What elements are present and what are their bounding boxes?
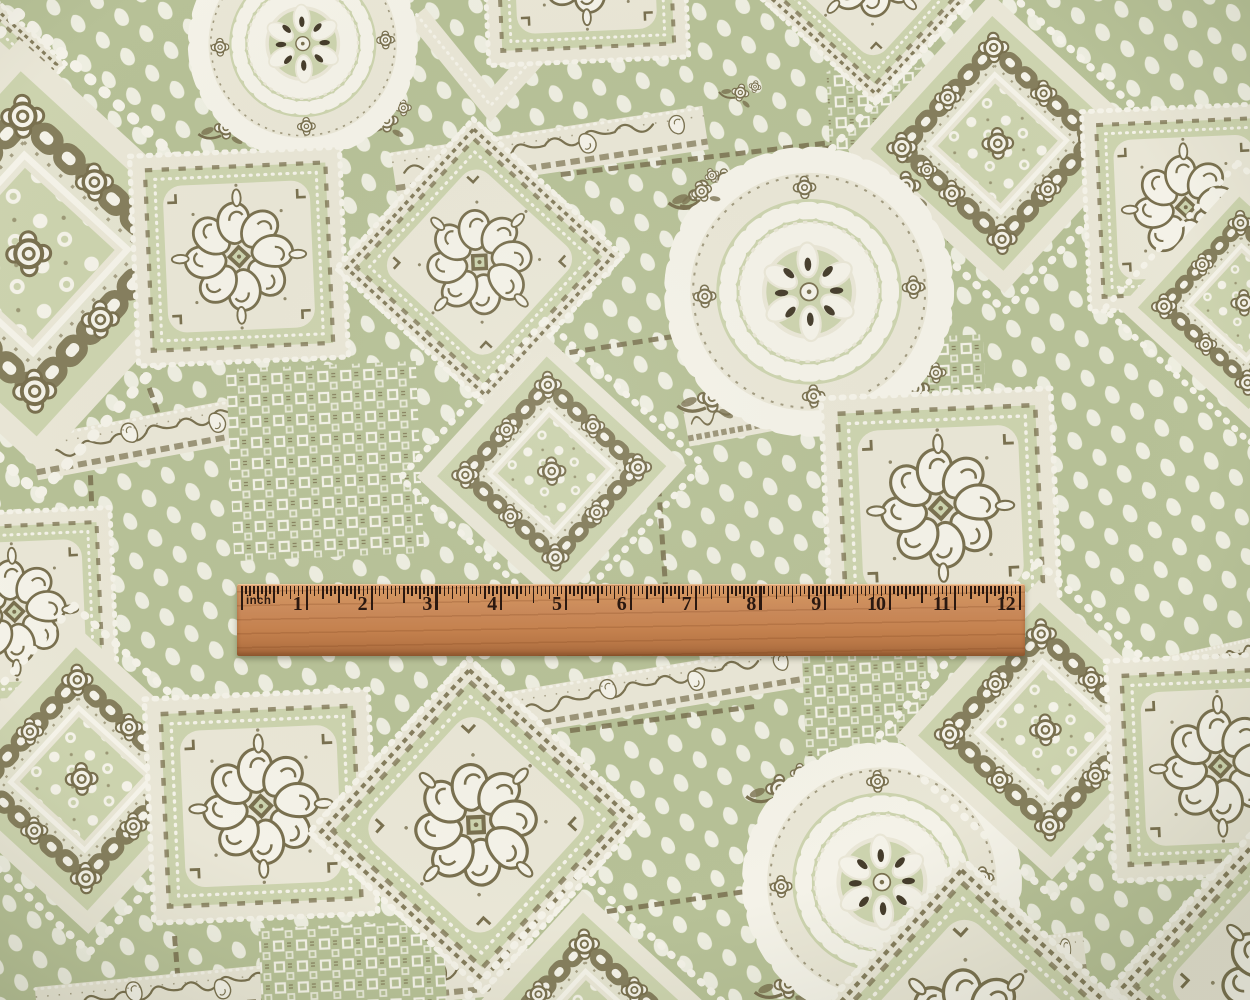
ruler-tick [893, 586, 895, 594]
ruler: inch 123456789101112 [237, 584, 1025, 656]
ruler-tick [338, 586, 340, 603]
ruler-tick [322, 586, 324, 599]
ruler-tick [982, 586, 984, 594]
ruler-tick [930, 586, 932, 596]
ruler-tick [399, 586, 401, 594]
ruler-tick [577, 586, 579, 594]
ruler-tick [520, 586, 522, 594]
ruler-tick [597, 586, 599, 603]
ruler-tick [581, 586, 583, 599]
ruler-tick [593, 586, 595, 594]
ruler-tick [1015, 586, 1017, 594]
ruler-number-11: 11 [933, 593, 950, 616]
ruler-tick [569, 586, 571, 594]
ruler-tick [403, 586, 405, 603]
ruler-number-1: 1 [293, 593, 302, 616]
ruler-tick [723, 586, 725, 594]
ruler-tick [480, 586, 482, 594]
ruler-number-12: 12 [997, 593, 1015, 616]
ruler-tick [253, 586, 255, 594]
ruler-tick [241, 586, 243, 610]
ruler-tick [525, 586, 527, 596]
ruler-tick [257, 586, 259, 599]
ruler-number-5: 5 [552, 593, 561, 616]
ruler-tick [634, 586, 636, 594]
ruler-tick [512, 586, 514, 594]
ruler-tick [529, 586, 531, 594]
ruler-tick [371, 586, 373, 610]
ruler-tick [460, 586, 462, 596]
ruler-tick [759, 586, 761, 610]
ruler-tick [909, 586, 911, 594]
ruler-tick [715, 586, 717, 594]
ruler-tick [840, 586, 842, 599]
ruler-tick [610, 586, 612, 594]
ruler-tick [468, 586, 470, 603]
ruler-tick [662, 586, 664, 603]
ruler-tick [954, 586, 956, 610]
ruler-tick [913, 586, 915, 596]
photo-vignette [0, 0, 1250, 1000]
ruler-tick [472, 586, 474, 594]
ruler-tick [1019, 586, 1021, 610]
ruler-tick [642, 586, 644, 594]
ruler-tick [318, 586, 320, 594]
ruler-tick [589, 586, 591, 596]
ruler-tick [849, 586, 851, 596]
ruler-tick [496, 586, 498, 594]
ruler-tick [796, 586, 798, 594]
ruler-tick [516, 586, 518, 599]
ruler-tick [379, 586, 381, 596]
ruler-tick [411, 586, 413, 596]
ruler-tick [986, 586, 988, 603]
ruler-tick [962, 586, 964, 596]
ruler-tick [674, 586, 676, 594]
ruler-tick [901, 586, 903, 594]
ruler-tick [387, 586, 389, 599]
ruler-tick [966, 586, 968, 594]
ruler-tick [330, 586, 332, 596]
ruler-number-3: 3 [422, 593, 431, 616]
ruler-tick [885, 586, 887, 594]
ruler-tick [865, 586, 867, 596]
ruler-tick [808, 586, 810, 599]
ruler-tick [573, 586, 575, 596]
ruler-tick [614, 586, 616, 599]
ruler-tick [435, 586, 437, 610]
ruler-tick [719, 586, 721, 596]
ruler-tick [302, 586, 304, 594]
ruler-number-7: 7 [682, 593, 691, 616]
ruler-tick [788, 586, 790, 594]
ruler-tick [784, 586, 786, 596]
ruler-tick [921, 586, 923, 603]
ruler-tick [978, 586, 980, 596]
ruler-tick [290, 586, 292, 599]
ruler-tick [456, 586, 458, 594]
ruler-tick [670, 586, 672, 596]
ruler-tick [561, 586, 563, 594]
ruler-tick [844, 586, 846, 594]
ruler-tick [601, 586, 603, 594]
ruler-tick [375, 586, 377, 594]
ruler-number-9: 9 [811, 593, 820, 616]
ruler-tick [743, 586, 745, 599]
ruler-tick [444, 586, 446, 596]
fabric [0, 0, 1250, 1000]
ruler-tick [974, 586, 976, 594]
ruler-tick [654, 586, 656, 596]
ruler-tick [541, 586, 543, 596]
ruler-tick [666, 586, 668, 594]
ruler-tick [950, 586, 952, 594]
ruler-tick [269, 586, 271, 594]
ruler-tick [277, 586, 279, 594]
ruler-tick [537, 586, 539, 594]
ruler-tick [419, 586, 421, 599]
ruler-tick [917, 586, 919, 594]
ruler-tick [650, 586, 652, 594]
ruler-tick [861, 586, 863, 594]
ruler-tick [800, 586, 802, 596]
ruler-tick [780, 586, 782, 594]
ruler-tick [504, 586, 506, 594]
ruler-tick [249, 586, 251, 596]
ruler-tick [565, 586, 567, 610]
ruler-tick [439, 586, 441, 594]
ruler-tick [476, 586, 478, 596]
ruler-tick [958, 586, 960, 594]
ruler-tick [508, 586, 510, 596]
ruler-tick [678, 586, 680, 599]
ruler-tick [261, 586, 263, 594]
ruler-tick [990, 586, 992, 594]
ruler-tick [824, 586, 826, 610]
ruler-tick [832, 586, 834, 596]
ruler-tick [735, 586, 737, 596]
ruler-tick [431, 586, 433, 594]
ruler-tick [306, 586, 308, 610]
ruler-tick [658, 586, 660, 594]
ruler-tick [585, 586, 587, 594]
ruler-tick [391, 586, 393, 594]
ruler-tick [711, 586, 713, 599]
ruler-tick [638, 586, 640, 596]
ruler-tick [273, 586, 275, 603]
ruler-tick [395, 586, 397, 596]
ruler-tick [282, 586, 284, 596]
ruler-tick [792, 586, 794, 603]
ruler-tick [707, 586, 709, 594]
ruler-tick [626, 586, 628, 594]
ruler-tick [905, 586, 907, 599]
ruler-tick [533, 586, 535, 603]
ruler-tick [346, 586, 348, 596]
ruler-tick [691, 586, 693, 594]
ruler-tick [367, 586, 369, 594]
ruler-tick [545, 586, 547, 594]
ruler-tick [772, 586, 774, 594]
ruler-tick [452, 586, 454, 599]
ruler-tick [334, 586, 336, 594]
ruler-tick [703, 586, 705, 596]
ruler-tick [448, 586, 450, 594]
ruler-tick [383, 586, 385, 594]
ruler-tick [755, 586, 757, 594]
ruler-tick [776, 586, 778, 599]
ruler-tick [407, 586, 409, 594]
ruler-tick [606, 586, 608, 596]
ruler-tick [265, 586, 267, 596]
ruler-tick [500, 586, 502, 610]
ruler-tick [549, 586, 551, 599]
ruler-tick [646, 586, 648, 599]
ruler-tick [768, 586, 770, 596]
ruler-tick [245, 586, 247, 594]
ruler-tick [994, 586, 996, 596]
ruler-tick [727, 586, 729, 603]
ruler-tick [857, 586, 859, 603]
ruler-tick [731, 586, 733, 594]
ruler-tick [970, 586, 972, 599]
ruler-tick [630, 586, 632, 610]
ruler-tick [739, 586, 741, 594]
ruler-number-2: 2 [358, 593, 367, 616]
ruler-tick [897, 586, 899, 596]
ruler-tick [820, 586, 822, 594]
ruler-tick [464, 586, 466, 594]
ruler-tick [889, 586, 891, 610]
ruler-tick [286, 586, 288, 594]
ruler-tick [695, 586, 697, 610]
ruler-tick [314, 586, 316, 596]
ruler-tick [342, 586, 344, 594]
ruler-tick [763, 586, 765, 594]
ruler-tick [836, 586, 838, 594]
ruler-number-8: 8 [746, 593, 755, 616]
ruler-tick [415, 586, 417, 594]
ruler-tick [828, 586, 830, 594]
ruler-tick [699, 586, 701, 594]
ruler-tick [484, 586, 486, 599]
fabric-photo-scene: inch 123456789101112 [0, 0, 1250, 1000]
ruler-tick [804, 586, 806, 594]
ruler-tick [350, 586, 352, 594]
ruler-number-10: 10 [867, 593, 885, 616]
ruler-tick [354, 586, 356, 599]
ruler-tick [853, 586, 855, 594]
ruler-number-6: 6 [617, 593, 626, 616]
ruler-tick [925, 586, 927, 594]
ruler-tick [310, 586, 312, 594]
ruler-number-4: 4 [487, 593, 496, 616]
ruler-tick [326, 586, 328, 594]
